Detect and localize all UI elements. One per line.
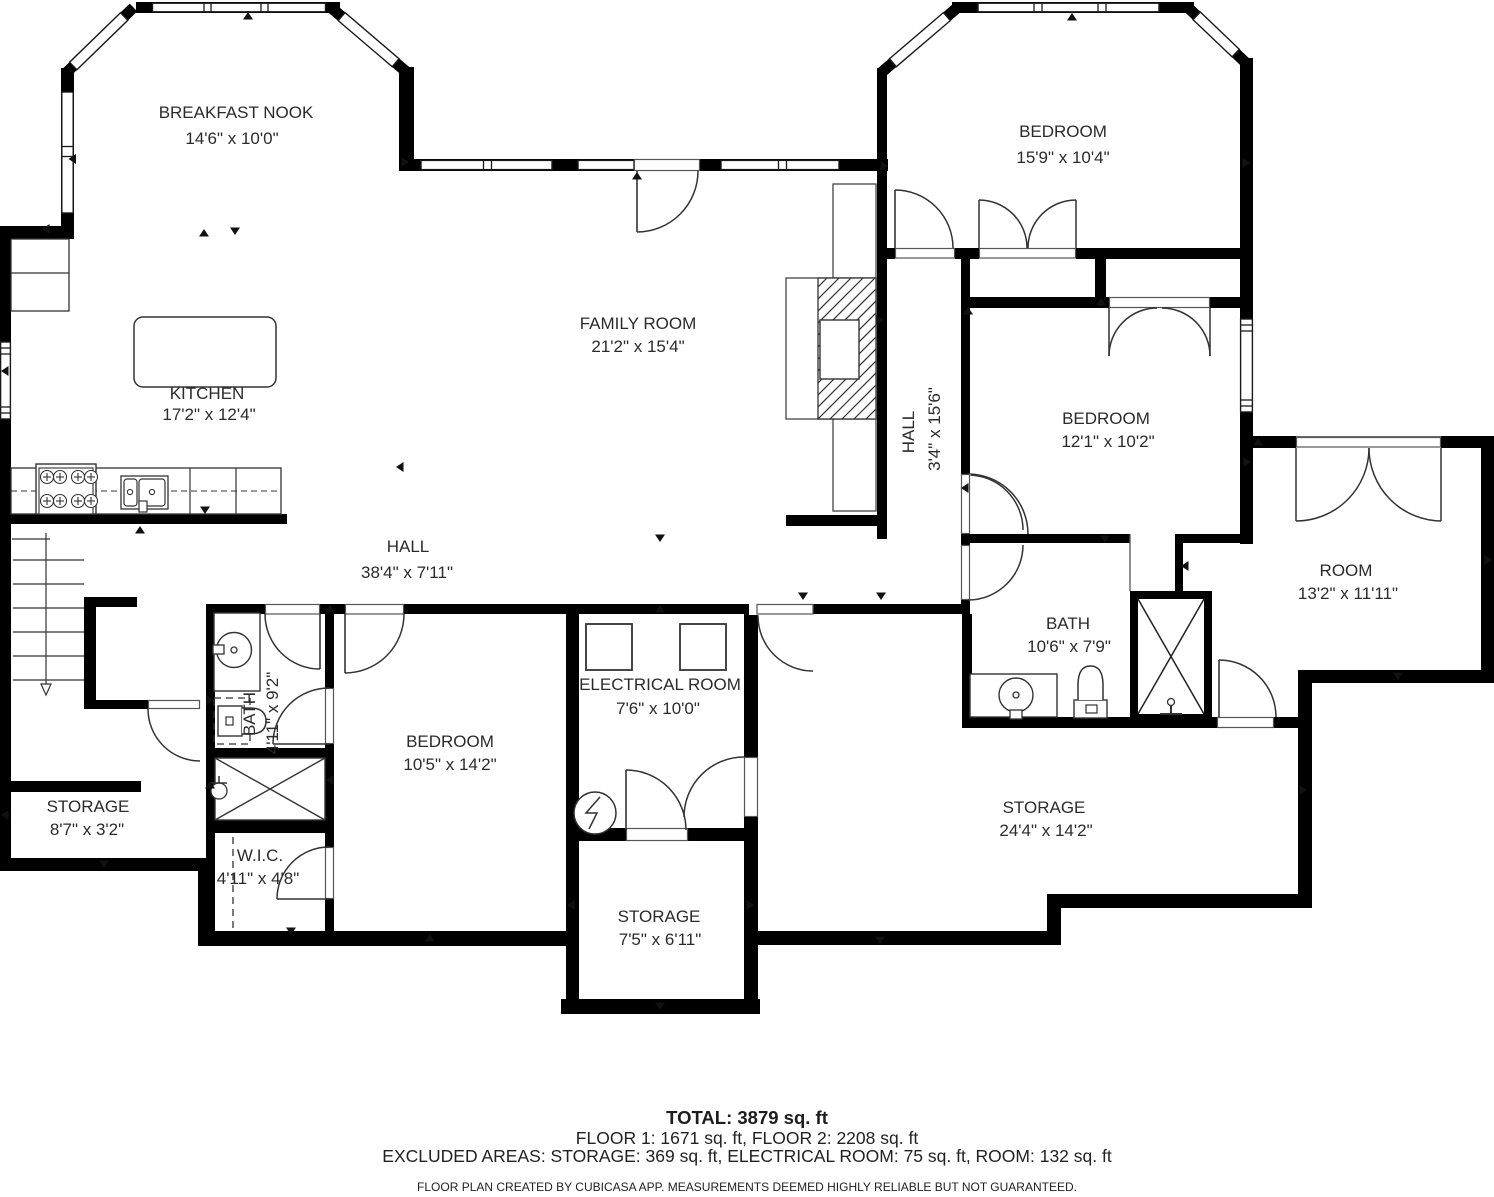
svg-text:TOTAL: 3879 sq. ft: TOTAL: 3879 sq. ft: [666, 1107, 828, 1128]
svg-text:BREAKFAST NOOK: BREAKFAST NOOK: [159, 103, 314, 122]
svg-text:HALL: HALL: [387, 537, 430, 556]
svg-text:3'4" x 15'6": 3'4" x 15'6": [925, 387, 944, 471]
svg-text:15'9" x 10'4": 15'9" x 10'4": [1016, 148, 1109, 167]
svg-text:KITCHEN: KITCHEN: [170, 384, 245, 403]
svg-text:7'5" x 6'11": 7'5" x 6'11": [619, 930, 702, 949]
svg-text:STORAGE: STORAGE: [47, 797, 130, 816]
svg-text:38'4" x 7'11": 38'4" x 7'11": [361, 563, 453, 582]
svg-text:14'6" x 10'0": 14'6" x 10'0": [185, 129, 278, 148]
svg-text:EXCLUDED AREAS: STORAGE: 369 s: EXCLUDED AREAS: STORAGE: 369 sq. ft, ELE…: [382, 1146, 1112, 1166]
svg-text:7'6" x 10'0": 7'6" x 10'0": [616, 699, 700, 718]
svg-text:BATH: BATH: [1046, 614, 1090, 633]
svg-text:13'2" x 11'11": 13'2" x 11'11": [1298, 584, 1398, 603]
svg-text:W.I.C.: W.I.C.: [237, 846, 283, 865]
svg-text:HALL: HALL: [899, 411, 918, 454]
svg-text:24'4" x 14'2": 24'4" x 14'2": [999, 821, 1092, 840]
svg-text:BATH: BATH: [240, 692, 259, 736]
svg-text:ELECTRICAL ROOM: ELECTRICAL ROOM: [579, 675, 741, 694]
svg-text:STORAGE: STORAGE: [618, 907, 701, 926]
svg-text:STORAGE: STORAGE: [1003, 798, 1086, 817]
svg-text:10'6" x 7'9": 10'6" x 7'9": [1027, 637, 1111, 656]
svg-text:4'11" x 4'8": 4'11" x 4'8": [217, 869, 300, 888]
svg-text:10'5" x 14'2": 10'5" x 14'2": [403, 755, 496, 774]
svg-text:FAMILY ROOM: FAMILY ROOM: [580, 314, 697, 333]
svg-text:BEDROOM: BEDROOM: [1062, 409, 1150, 428]
svg-text:4'11" x 9'2": 4'11" x 9'2": [263, 672, 282, 755]
svg-text:ROOM: ROOM: [1320, 561, 1373, 580]
svg-text:BEDROOM: BEDROOM: [406, 732, 494, 751]
svg-text:12'1" x 10'2": 12'1" x 10'2": [1061, 432, 1154, 451]
svg-text:8'7" x 3'2": 8'7" x 3'2": [50, 820, 124, 839]
svg-text:21'2" x 15'4": 21'2" x 15'4": [591, 337, 684, 356]
svg-text:FLOOR PLAN CREATED BY CUBICASA: FLOOR PLAN CREATED BY CUBICASA APP. MEAS…: [417, 1180, 1077, 1194]
svg-text:17'2" x 12'4": 17'2" x 12'4": [162, 405, 255, 424]
svg-text:FLOOR 1: 1671 sq. ft, FLOOR 2:: FLOOR 1: 1671 sq. ft, FLOOR 2: 2208 sq. …: [576, 1128, 919, 1148]
svg-text:BEDROOM: BEDROOM: [1019, 122, 1107, 141]
